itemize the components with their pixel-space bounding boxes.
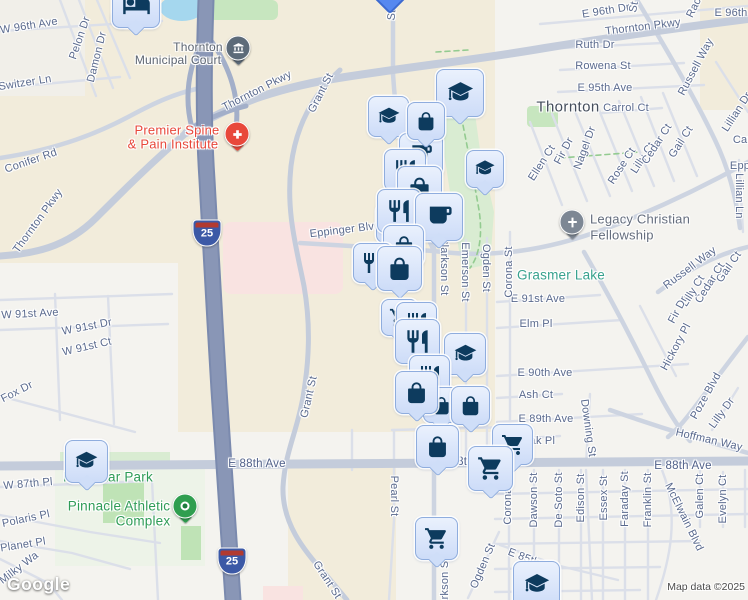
bag-icon	[386, 255, 413, 282]
graduation-icon	[74, 449, 99, 474]
graduation-pin[interactable]	[368, 96, 409, 137]
bag-pin[interactable]	[416, 425, 459, 468]
cart-pin[interactable]	[468, 446, 513, 491]
cart-icon	[424, 526, 449, 551]
graduation-pin[interactable]	[466, 150, 504, 188]
bag-icon	[415, 110, 437, 132]
restaurant-icon	[404, 328, 431, 355]
graduation-icon	[474, 158, 496, 180]
cart-icon	[477, 455, 504, 482]
park-dot-icon	[181, 502, 190, 511]
bag-icon	[459, 394, 482, 417]
cross-icon	[565, 215, 579, 229]
google-logo[interactable]: Google	[7, 574, 70, 595]
church-marker[interactable]	[560, 210, 585, 235]
plus-icon	[230, 127, 244, 141]
bag-pin[interactable]	[451, 386, 490, 425]
court-icon	[231, 41, 245, 55]
graduation-pin[interactable]	[65, 440, 108, 483]
cafe-icon	[425, 203, 454, 232]
graduation-pin[interactable]	[444, 333, 486, 375]
graduation-pin[interactable]	[513, 561, 560, 600]
map-attribution: Map data ©2025	[667, 581, 745, 593]
basemap-layer	[0, 0, 748, 600]
lodging-icon	[122, 0, 151, 19]
graduation-icon	[377, 105, 401, 129]
medical-marker[interactable]	[225, 122, 250, 147]
map-canvas[interactable]: W 96th AvePelon DrDamon DrSwitzer LnThor…	[0, 0, 748, 600]
bag-icon	[404, 380, 429, 405]
graduation-icon	[523, 571, 551, 599]
lodging-pin[interactable]	[112, 0, 160, 28]
restaurant-icon	[386, 198, 412, 224]
bag-pin[interactable]	[395, 371, 438, 414]
graduation-icon	[453, 342, 478, 367]
bag-icon	[425, 434, 450, 459]
bag-pin[interactable]	[407, 102, 445, 140]
park-marker[interactable]	[173, 494, 198, 519]
municipal-court-marker[interactable]	[226, 36, 251, 61]
bag-pin[interactable]	[377, 246, 422, 291]
graduation-icon	[446, 79, 475, 108]
cart-pin[interactable]	[415, 517, 458, 560]
